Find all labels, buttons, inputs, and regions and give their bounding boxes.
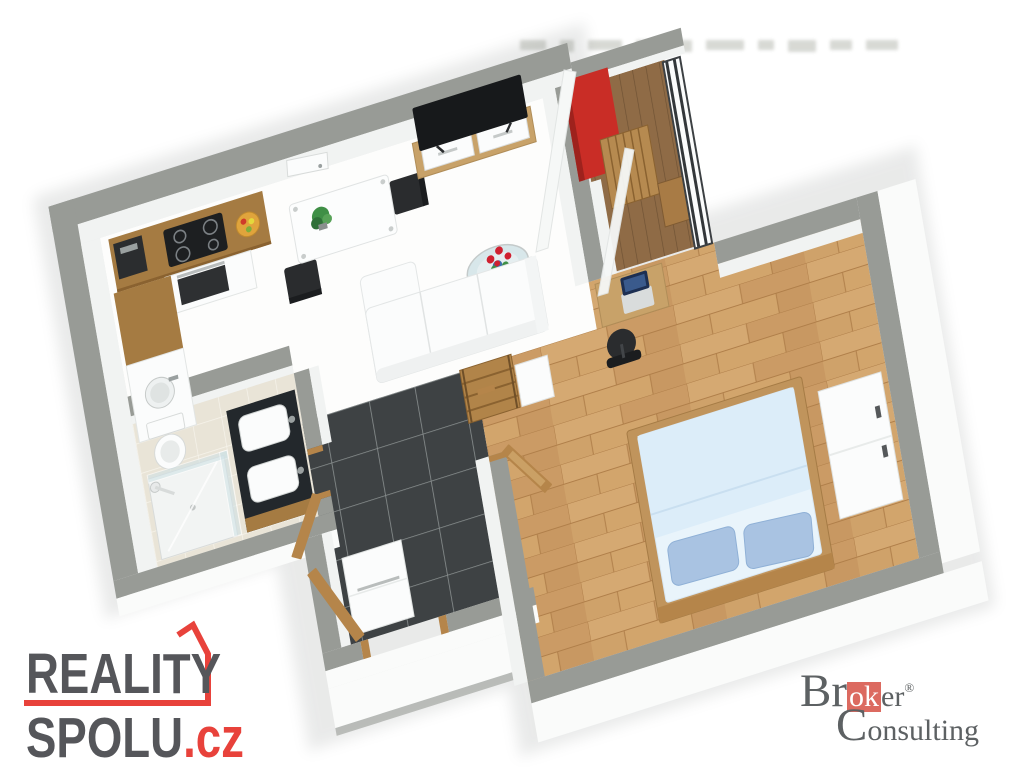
reality-spolu-line1: REALITY [26,646,244,703]
page: { "page": {"background": "#ffffff", "des… [0,0,1024,768]
broker-onsulting: onsulting [867,714,979,747]
reality-spolu-logo: REALITY SPOLU.cz [26,646,244,767]
broker-line2: Consulting [836,702,1020,749]
reality-spolu-cz: .cz [183,706,244,770]
broker-c: C [836,699,867,751]
registered-mark: ® [904,680,914,695]
reality-spolu-line2: SPOLU.cz [26,710,244,767]
broker-consulting-logo: Broker® Consulting [800,668,1020,749]
